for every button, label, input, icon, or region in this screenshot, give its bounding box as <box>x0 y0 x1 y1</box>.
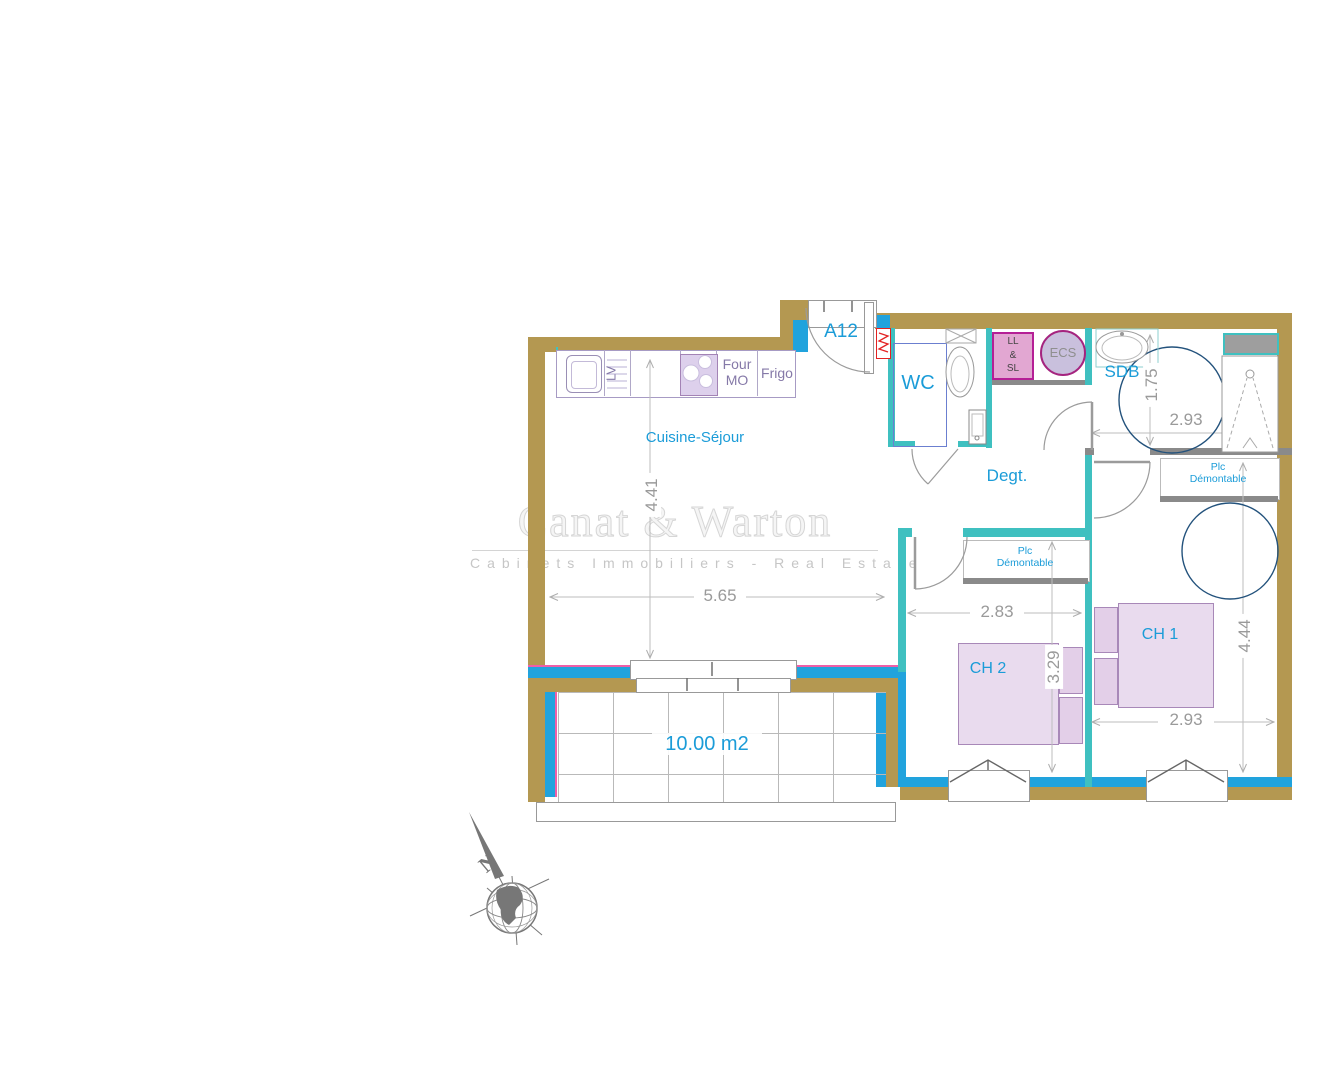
partition-bed2-left <box>898 537 906 672</box>
glazing-entry-jamb <box>793 320 808 352</box>
glazing-entry-right <box>875 315 890 328</box>
floor-plan-canvas: Canat & Warton Cabinets Immobiliers - Re… <box>0 0 1343 1079</box>
wc-fixtures <box>946 329 986 444</box>
bed2-window <box>948 770 1030 802</box>
room-label-bath: SDB <box>1098 363 1146 382</box>
oven-label: Four MO <box>718 356 756 388</box>
wall-right <box>1277 313 1292 800</box>
bed1-pillow-1 <box>1094 607 1118 653</box>
shower-duct <box>1224 334 1278 354</box>
accent-line-terrace <box>555 692 557 797</box>
dim-living-width: 5.65 <box>694 587 746 605</box>
bath-fixtures <box>1096 329 1278 452</box>
unit-label: A12 <box>814 322 868 343</box>
dim-bath-width: 2.93 <box>1158 411 1214 429</box>
partition-bath-left <box>1085 328 1092 385</box>
shower <box>1222 356 1278 452</box>
north-label: N <box>474 848 503 878</box>
wall-top-right <box>875 313 1292 329</box>
dim-bath-height: 1.75 <box>1143 363 1161 407</box>
turning-circle-bed1 <box>1182 503 1278 599</box>
bath-basin <box>1096 331 1148 363</box>
partition-wc-bottom-right <box>958 441 992 447</box>
wc-clearance-zone <box>893 343 947 447</box>
bed1-door-arc <box>1094 462 1150 518</box>
kitchen-sink-basin <box>571 361 597 389</box>
room-label-hall: Degt. <box>975 467 1039 486</box>
living-bay-window <box>630 660 797 680</box>
bed2-pillow-2 <box>1059 697 1083 744</box>
toilet <box>946 347 974 397</box>
bed1-window <box>1146 770 1228 802</box>
vent-grille <box>946 329 976 343</box>
room-label-bed1: CH 1 <box>1134 626 1186 644</box>
dishwasher-label: LV <box>605 357 620 389</box>
dim-living-height: 4.41 <box>643 473 661 517</box>
wc-door-leaf <box>928 449 958 484</box>
dim-bed2-width: 2.83 <box>970 603 1024 621</box>
entry-radiator <box>876 328 891 359</box>
room-label-living: Cuisine-Séjour <box>625 430 765 447</box>
closet-bed2-front <box>963 578 1088 584</box>
living-bay-sill <box>636 678 791 693</box>
counter-divider-2 <box>630 350 631 396</box>
wall-terrace-left <box>528 692 545 802</box>
glazing-terrace-left <box>545 692 555 797</box>
kitchen-hob <box>680 354 718 396</box>
glazing-bed2-left <box>898 672 906 787</box>
wc-basin <box>969 410 986 444</box>
room-label-bed2: CH 2 <box>962 660 1014 678</box>
partition-bath-bottom-a <box>1085 448 1094 455</box>
counter-edge-utility-nook <box>992 380 1085 385</box>
terrace-area-label: 10.00 m2 <box>652 733 762 755</box>
bed1-pillow-2 <box>1094 658 1118 705</box>
dim-bed2-height: 3.29 <box>1045 645 1063 689</box>
closet-bed2-label: Plc Démontable <box>975 546 1075 569</box>
bath-door-arc <box>1044 402 1092 450</box>
partition-bed2-top-b <box>963 528 1092 537</box>
washer-dryer-label: LL & SL <box>992 335 1034 376</box>
closet-bed1-label: Plc Démontable <box>1168 462 1268 485</box>
dim-bed1-width: 2.93 <box>1158 711 1214 729</box>
dim-bed1-height: 4.44 <box>1236 614 1254 658</box>
room-label-wc: WC <box>896 372 940 394</box>
wall-left <box>528 337 545 692</box>
water-heater-label: ECS <box>1040 330 1086 376</box>
terrace-railing <box>536 802 896 822</box>
bed1 <box>1118 603 1214 708</box>
closet-bed1-front <box>1160 496 1278 502</box>
compass <box>469 812 549 945</box>
partition-bed1-bed2 <box>1085 455 1092 787</box>
partition-bed2-top-a <box>898 528 912 537</box>
fridge-label: Frigo <box>758 365 796 381</box>
globe-icon <box>487 883 537 933</box>
wc-door-arc <box>912 449 928 484</box>
partition-bath-bottom-b <box>1150 448 1292 455</box>
